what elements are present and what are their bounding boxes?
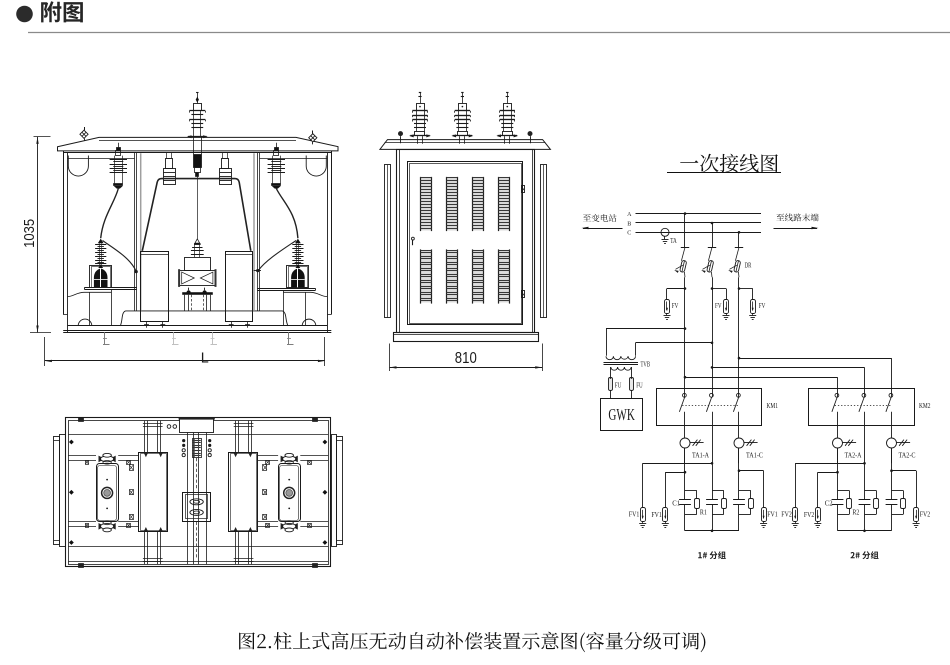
svg-text:C: C [627,231,631,237]
svg-text:FV1: FV1 [767,511,778,519]
svg-text:FU: FU [615,381,622,389]
svg-text:KM1: KM1 [767,402,779,410]
svg-text:R1: R1 [700,509,707,517]
svg-text:FV: FV [672,302,679,310]
svg-text:FV: FV [759,302,766,310]
svg-text:KM2: KM2 [919,402,931,410]
svg-text:GWK: GWK [608,405,635,424]
svg-text:TA1-A: TA1-A [692,452,710,460]
svg-text:R2: R2 [852,509,859,517]
svg-text:TVB: TVB [641,360,651,368]
svg-text:TA: TA [670,237,677,245]
svg-text:A: A [627,212,632,218]
svg-text:FU: FU [636,381,643,389]
svg-text:FV2: FV2 [920,511,931,519]
svg-text:B: B [627,221,631,227]
svg-text:FV1: FV1 [629,511,640,519]
svg-text:TA2-A: TA2-A [845,452,863,460]
svg-text:C1: C1 [672,500,680,508]
svg-text:FV2: FV2 [781,511,792,519]
svg-text:1035: 1035 [21,219,38,248]
svg-text:L: L [201,349,209,366]
svg-text:FV2: FV2 [804,511,815,519]
svg-text:TA2-C: TA2-C [899,452,916,460]
svg-text:DR: DR [745,262,752,270]
svg-text:FV1: FV1 [651,511,662,519]
svg-text:FV: FV [715,302,722,310]
svg-text:TA1-C: TA1-C [746,452,763,460]
svg-text:810: 810 [455,350,477,367]
svg-text:C2: C2 [825,500,833,508]
